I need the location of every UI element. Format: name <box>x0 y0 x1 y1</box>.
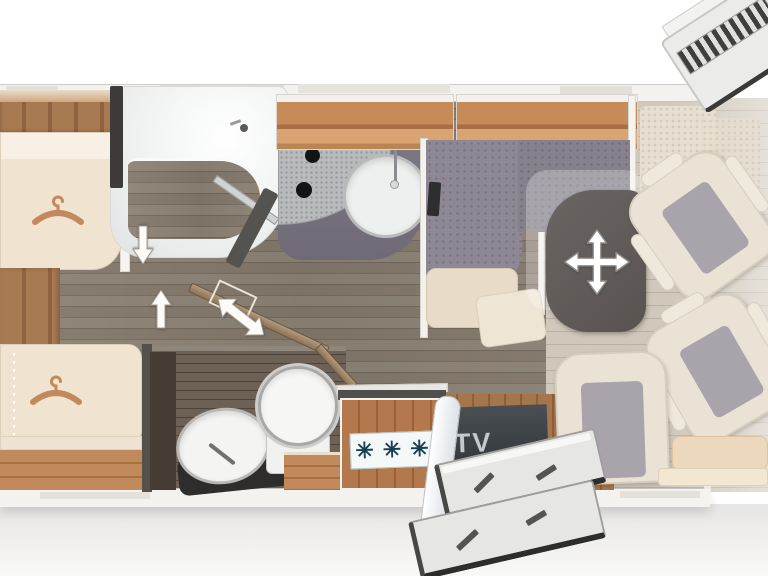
tread-mark <box>473 472 494 493</box>
rear-bench <box>672 436 768 470</box>
burner <box>296 182 312 198</box>
faucet-base <box>390 180 399 189</box>
move-table-arrow-icon <box>559 224 635 300</box>
floorplan-canvas: TV ✳ ✳ ✳ <box>0 0 768 576</box>
rear-bench-cushion <box>658 468 768 486</box>
toilet <box>258 366 338 446</box>
bed-drawer-top <box>0 436 142 450</box>
snowflake-icon: ✳ <box>355 440 374 463</box>
rear-single-bed-top <box>0 132 122 270</box>
window-frame <box>620 491 700 498</box>
arrow-up-icon <box>150 290 172 330</box>
arrow-down-icon <box>132 224 154 264</box>
snowflake-icon: ✳ <box>410 438 429 461</box>
snowflake-icon: ✳ <box>382 439 401 462</box>
tread-mark <box>456 529 479 551</box>
hanger-icon <box>29 195 87 227</box>
tread-mark <box>525 510 547 526</box>
faucet <box>394 148 397 182</box>
pillow <box>1 133 121 159</box>
window-frame <box>40 492 150 499</box>
hanger-icon <box>27 375 85 407</box>
window-frame <box>560 86 632 94</box>
kitchen-sink <box>343 154 429 238</box>
wardrobe-planks-mid <box>0 268 60 348</box>
seatbelt-anchor <box>427 182 441 217</box>
shower-head-icon <box>240 124 248 132</box>
bed-drawer-front <box>0 450 142 490</box>
bed-extension-dotted-line <box>13 353 15 435</box>
bed-overhead-strip <box>0 90 118 102</box>
tread-mark <box>535 464 557 481</box>
vanity-wood-step <box>284 452 346 490</box>
rear-single-bed-bottom <box>0 344 142 440</box>
fridge-panel: ✳ ✳ ✳ <box>349 431 434 470</box>
dinette-bench <box>426 140 522 280</box>
burner <box>305 148 320 163</box>
headboard-planks <box>0 102 118 136</box>
washroom-cabinet-dark <box>150 352 176 490</box>
ground-shadow <box>0 504 768 576</box>
window-frame <box>298 84 450 93</box>
shower-room-dark-jamb <box>110 86 123 188</box>
